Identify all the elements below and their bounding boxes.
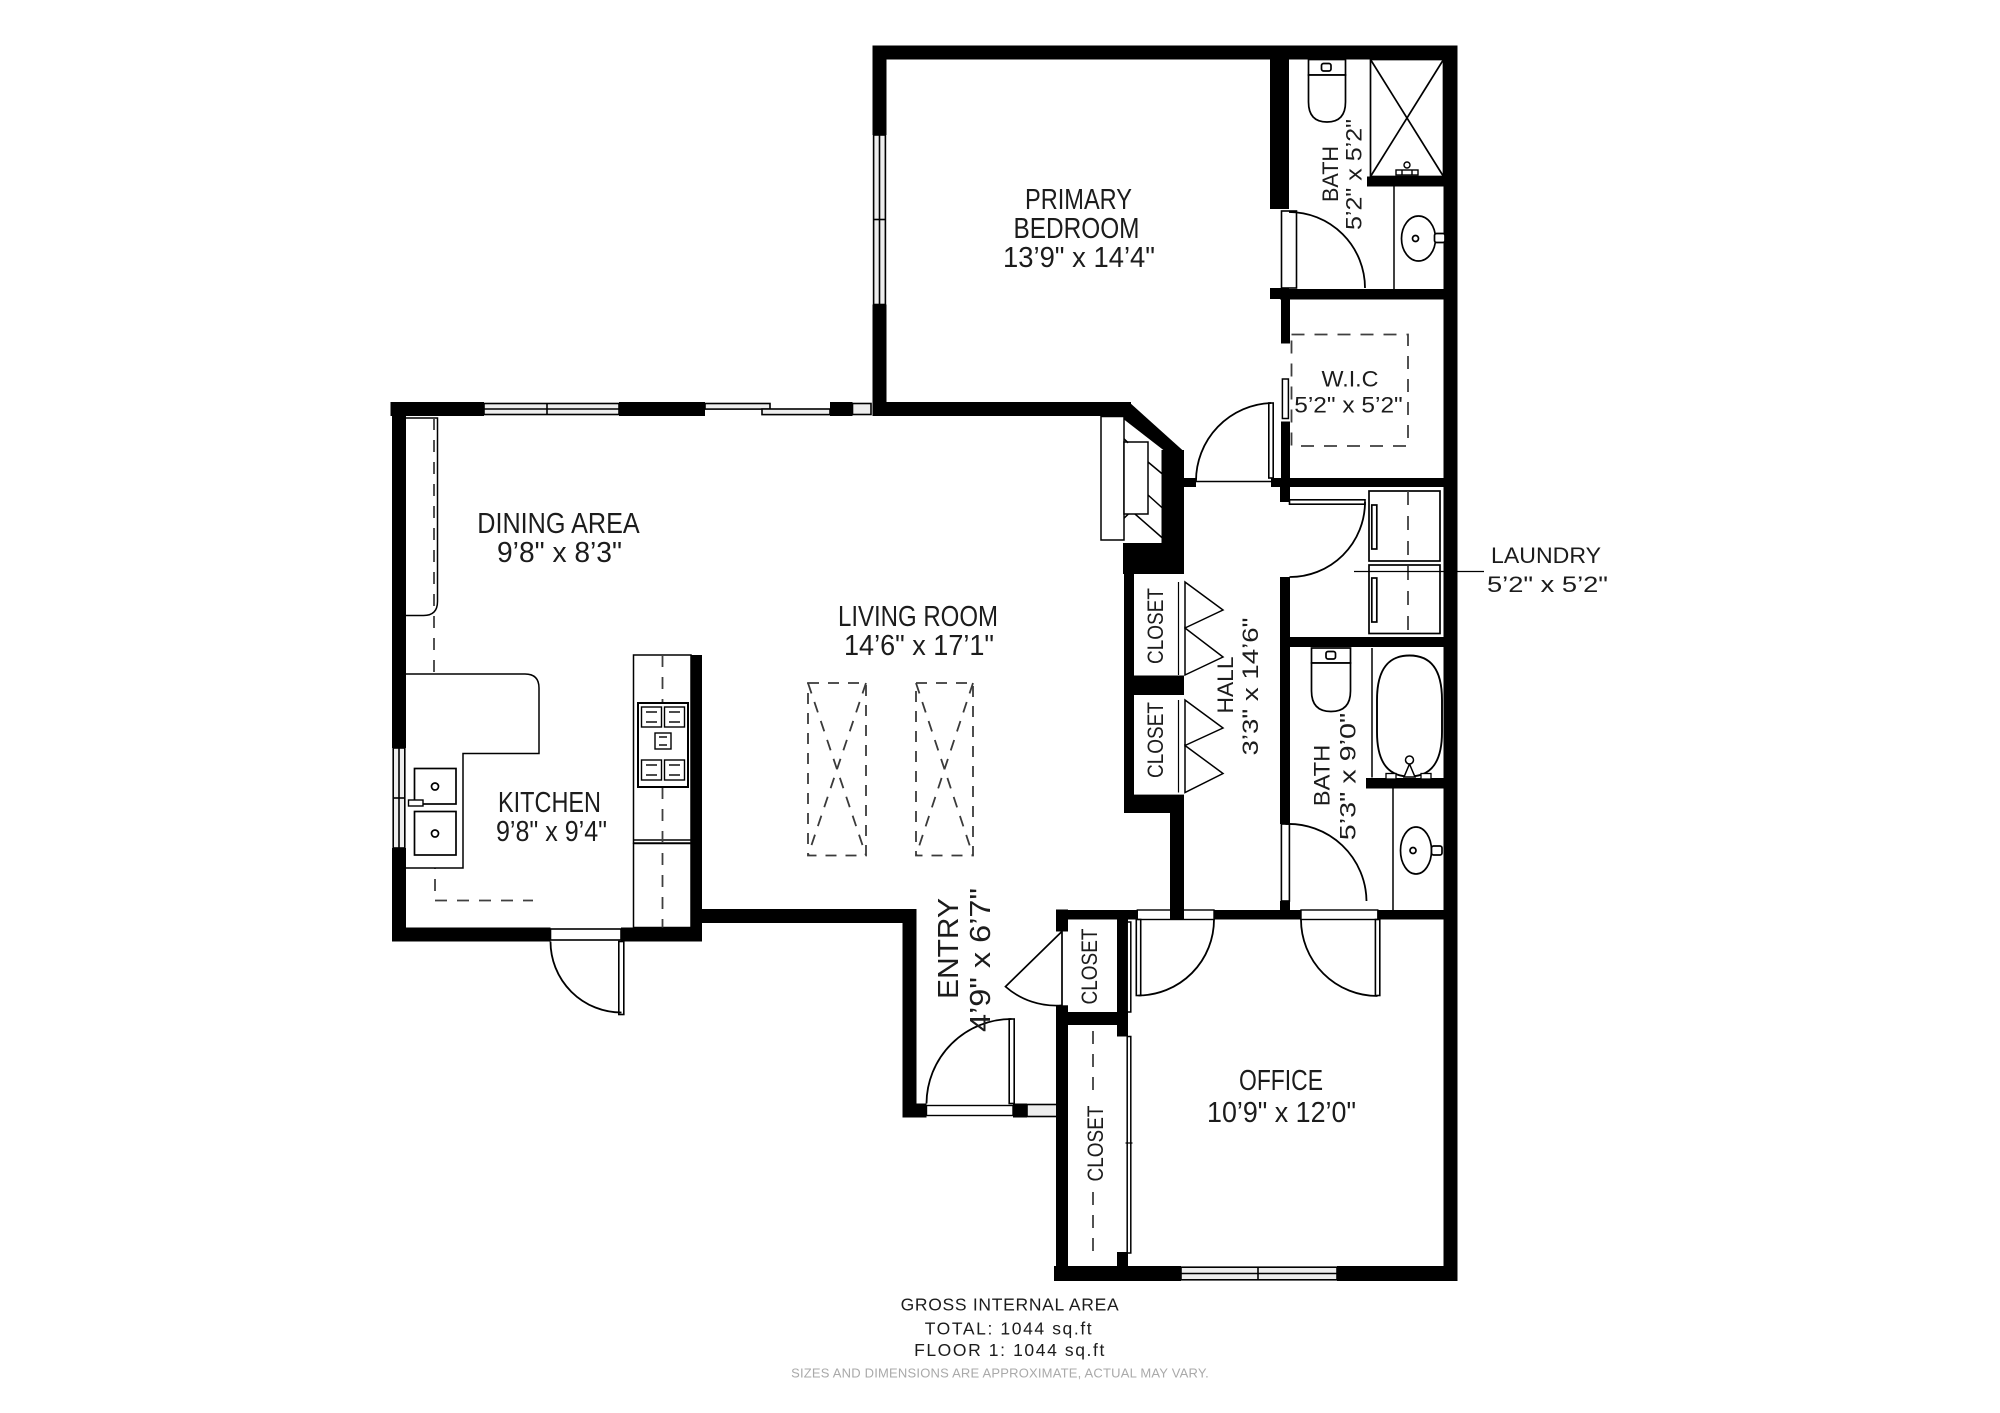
svg-text:ENTRY: ENTRY bbox=[933, 898, 965, 999]
svg-text:LAUNDRY: LAUNDRY bbox=[1491, 543, 1601, 568]
svg-text:14’6" x 17’1": 14’6" x 17’1" bbox=[844, 630, 994, 662]
svg-text:KITCHEN: KITCHEN bbox=[498, 787, 601, 819]
svg-text:9’8" x 9’4": 9’8" x 9’4" bbox=[496, 816, 607, 848]
svg-text:FLOOR 1: 1044 sq.ft: FLOOR 1: 1044 sq.ft bbox=[914, 1340, 1106, 1360]
svg-text:5’3" x 9’0": 5’3" x 9’0" bbox=[1336, 713, 1361, 841]
svg-text:CLOSET: CLOSET bbox=[1143, 702, 1168, 778]
svg-text:GROSS INTERNAL AREA: GROSS INTERNAL AREA bbox=[901, 1295, 1120, 1315]
svg-text:5’2" x 5’2": 5’2" x 5’2" bbox=[1342, 119, 1367, 230]
svg-text:HALL: HALL bbox=[1213, 657, 1238, 714]
svg-text:PRIMARY: PRIMARY bbox=[1025, 184, 1132, 216]
svg-text:W.I.C: W.I.C bbox=[1322, 367, 1379, 392]
svg-text:4’9" x 6’7": 4’9" x 6’7" bbox=[965, 888, 997, 1032]
svg-text:BATH: BATH bbox=[1318, 146, 1343, 202]
svg-text:BEDROOM: BEDROOM bbox=[1014, 213, 1140, 245]
svg-text:LIVING ROOM: LIVING ROOM bbox=[838, 601, 998, 633]
svg-text:SIZES AND DIMENSIONS ARE APPRO: SIZES AND DIMENSIONS ARE APPROXIMATE, AC… bbox=[791, 1366, 1209, 1381]
svg-text:CLOSET: CLOSET bbox=[1077, 928, 1102, 1004]
svg-text:10’9" x 12’0": 10’9" x 12’0" bbox=[1207, 1097, 1356, 1129]
svg-text:OFFICE: OFFICE bbox=[1239, 1065, 1323, 1097]
svg-text:DINING AREA: DINING AREA bbox=[477, 508, 640, 540]
svg-text:5’2" x 5’2": 5’2" x 5’2" bbox=[1294, 393, 1403, 418]
svg-text:BATH: BATH bbox=[1310, 745, 1335, 807]
svg-text:5’2" x 5’2": 5’2" x 5’2" bbox=[1487, 572, 1608, 597]
svg-text:9’8" x 8’3": 9’8" x 8’3" bbox=[497, 537, 622, 569]
svg-text:CLOSET: CLOSET bbox=[1143, 588, 1168, 664]
svg-text:3’3" x 14’6": 3’3" x 14’6" bbox=[1238, 617, 1263, 755]
svg-text:TOTAL: 1044 sq.ft: TOTAL: 1044 sq.ft bbox=[925, 1319, 1094, 1339]
svg-text:CLOSET: CLOSET bbox=[1083, 1105, 1108, 1181]
svg-text:13’9" x 14’4": 13’9" x 14’4" bbox=[1003, 242, 1155, 274]
